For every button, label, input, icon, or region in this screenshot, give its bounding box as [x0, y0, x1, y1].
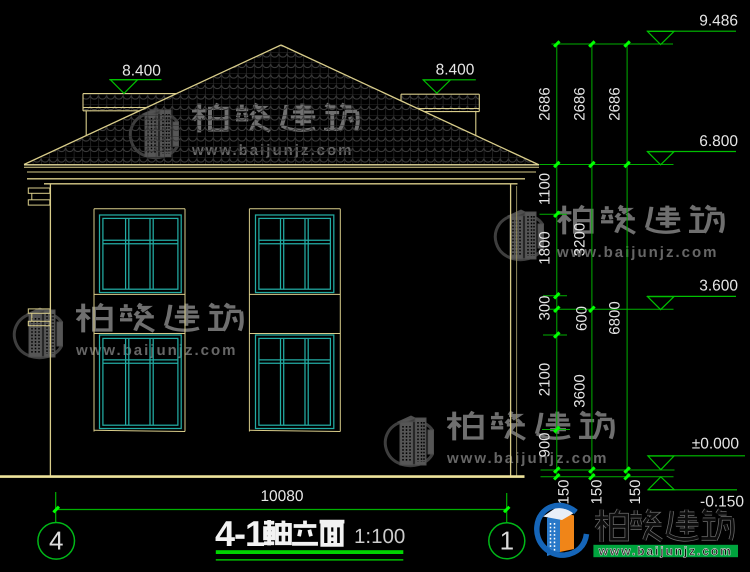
svg-text:600: 600: [574, 306, 591, 331]
svg-text:6800: 6800: [607, 301, 624, 334]
svg-text:3.600: 3.600: [699, 278, 738, 295]
svg-text:4-1: 4-1: [215, 513, 265, 554]
svg-text:www.baijunjz.com: www.baijunjz.com: [446, 450, 608, 467]
svg-text:±0.000: ±0.000: [692, 436, 740, 453]
svg-text:8.400: 8.400: [436, 62, 475, 79]
svg-text:6.800: 6.800: [699, 133, 738, 150]
svg-text:300: 300: [536, 295, 553, 320]
svg-text:3600: 3600: [571, 374, 588, 407]
svg-text:900: 900: [536, 432, 553, 457]
svg-text:150: 150: [589, 479, 606, 504]
svg-text:1100: 1100: [536, 173, 553, 205]
svg-text:2100: 2100: [536, 363, 553, 396]
svg-text:-0.150: -0.150: [700, 494, 744, 511]
svg-text:150: 150: [627, 479, 644, 504]
svg-text:www.baijunjz.com: www.baijunjz.com: [598, 544, 733, 558]
svg-text:2686: 2686: [571, 87, 588, 120]
svg-text:8.400: 8.400: [122, 63, 161, 80]
svg-text:4: 4: [49, 526, 63, 556]
svg-text:2686: 2686: [607, 87, 624, 120]
svg-text:9.486: 9.486: [699, 13, 738, 30]
svg-text:150: 150: [556, 479, 573, 504]
svg-text:10080: 10080: [260, 488, 303, 505]
svg-text:1:100: 1:100: [354, 525, 405, 548]
svg-text:2686: 2686: [536, 87, 553, 120]
svg-text:3200: 3200: [571, 223, 588, 256]
svg-text:1800: 1800: [536, 231, 553, 264]
svg-text:1: 1: [500, 526, 514, 556]
